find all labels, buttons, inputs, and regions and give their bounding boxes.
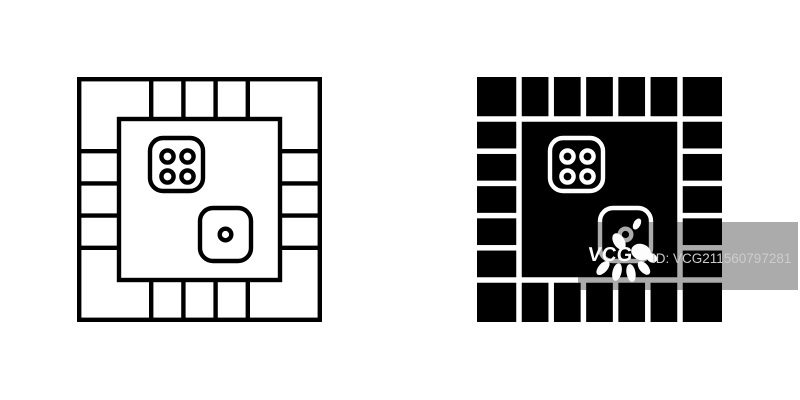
vcg-logo-text: VCG <box>587 245 634 265</box>
stock-image-page: { "page": { "background_color": "#ffffff… <box>0 0 800 400</box>
vcg-logo-figure-icon <box>580 200 680 285</box>
image-id-text: ID: VCG211560797281 <box>652 252 791 266</box>
board-game-outline-icon <box>77 77 322 322</box>
